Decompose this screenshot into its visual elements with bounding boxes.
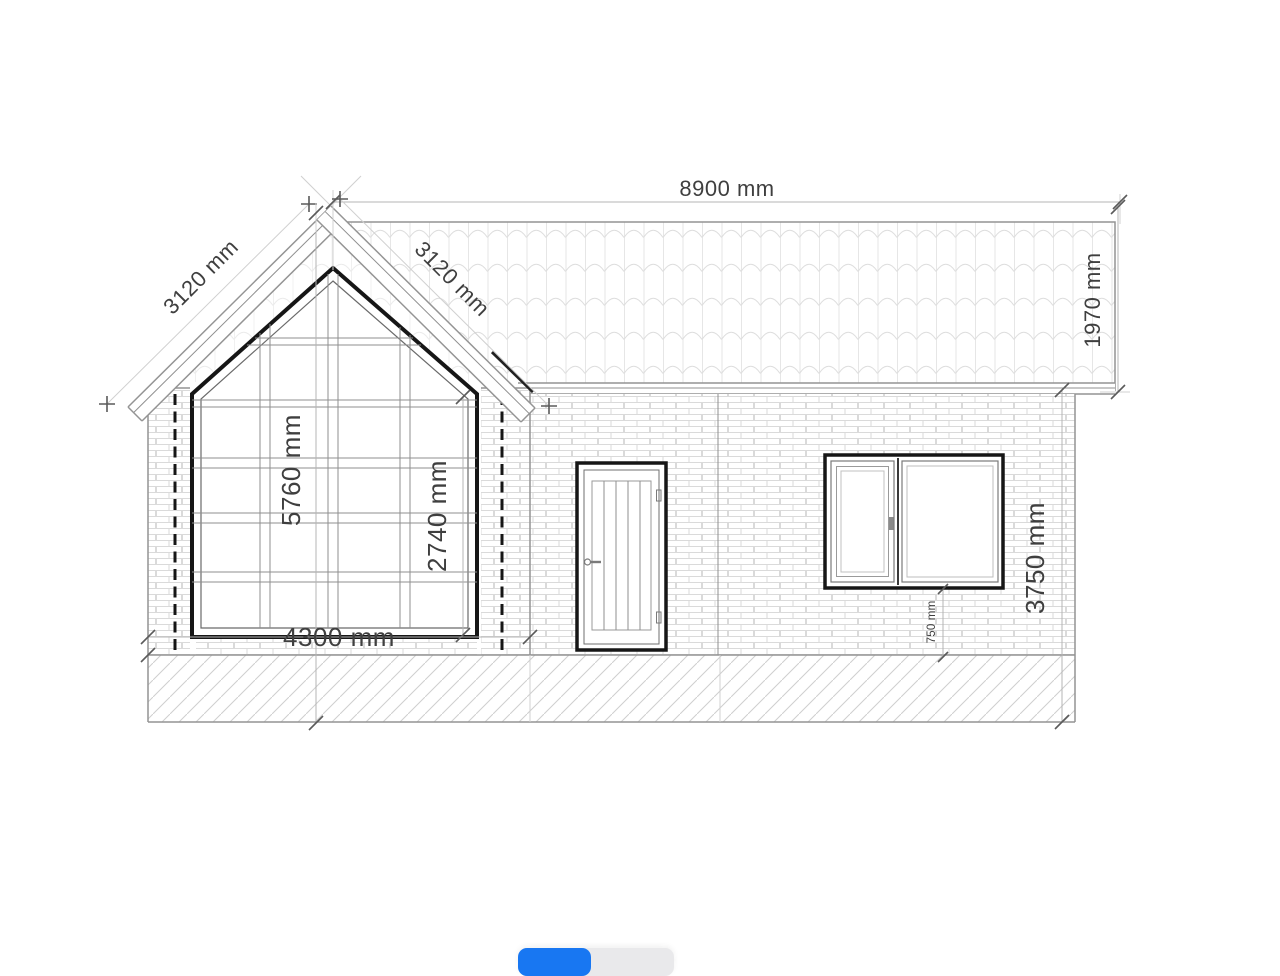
dim-label-wall-height: 3750 mm bbox=[1020, 502, 1050, 614]
dim-label-gable-width: 4300 mm bbox=[283, 622, 395, 652]
dim-label-roof-band-height: 1970 mm bbox=[1080, 252, 1105, 347]
foundation bbox=[141, 648, 1075, 722]
segmented-control-selected-segment[interactable] bbox=[518, 948, 591, 976]
drawing-canvas[interactable]: 8900 mm 1970 mm 3120 mm 3120 mm 5760 mm … bbox=[0, 0, 1280, 960]
segmented-control[interactable] bbox=[518, 948, 674, 976]
elevation-drawing: 8900 mm 1970 mm 3120 mm 3120 mm 5760 mm … bbox=[0, 0, 1280, 960]
entry-door bbox=[577, 463, 666, 650]
side-window bbox=[825, 455, 1003, 588]
segmented-control-unselected-segment[interactable] bbox=[591, 948, 674, 976]
dim-label-window-height: 2740 mm bbox=[422, 460, 452, 572]
window-handle-icon bbox=[889, 517, 894, 530]
dim-label-overall-height: 5760 mm bbox=[276, 414, 306, 526]
dim-label-sill-height: 750 mm bbox=[926, 601, 938, 644]
dim-label-ridge-width: 8900 mm bbox=[679, 176, 774, 201]
